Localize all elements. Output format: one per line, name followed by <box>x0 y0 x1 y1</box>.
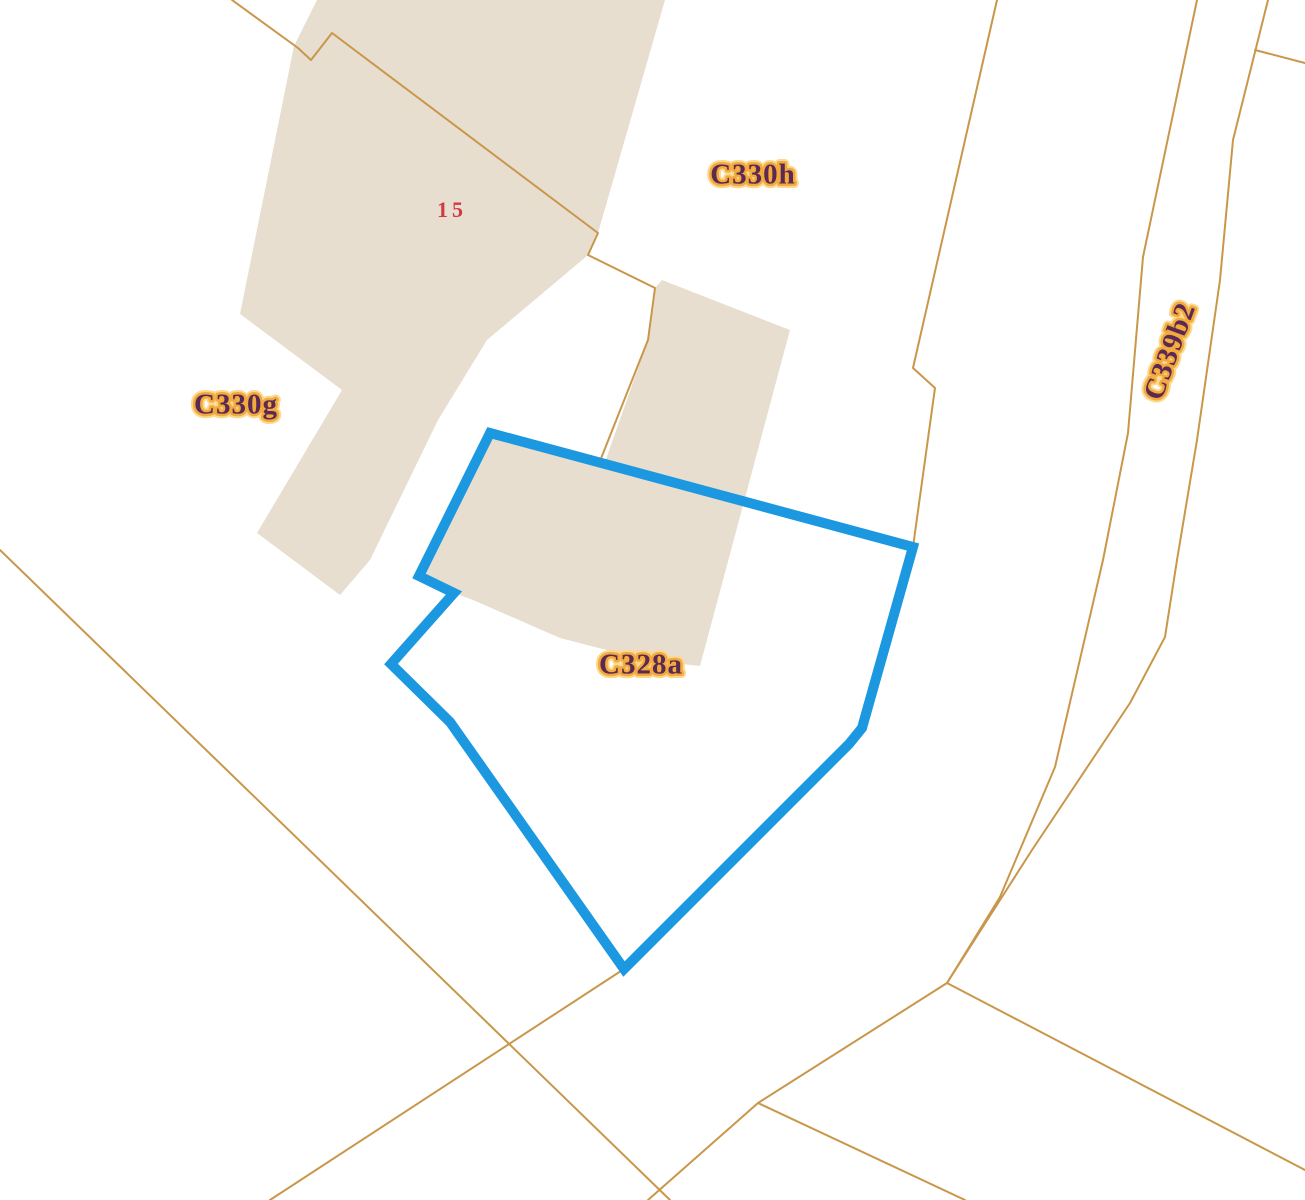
parcel-label-c330g: C330g <box>194 389 278 421</box>
boundary-from-blue-vertex <box>270 969 624 1200</box>
house-number-label-house-15: 15 <box>437 197 467 222</box>
road-southwest <box>0 550 670 1200</box>
building-footprints <box>240 0 790 666</box>
junction-line-south <box>758 1103 965 1200</box>
cadastral-map-canvas[interactable]: C330hC330hC330hC330gC330gC330gC328aC328a… <box>0 0 1305 1200</box>
parcel-label-c328a: C328a <box>599 649 683 681</box>
parcel-label-c330h: C330h <box>710 159 796 191</box>
junction-line-west <box>648 983 947 1200</box>
junction-line-southeast <box>947 983 1305 1170</box>
road-c339b2-left-edge <box>947 0 1197 983</box>
spur-top-right <box>1255 50 1305 63</box>
parcel-line-to-blue-vertex <box>913 0 997 547</box>
road-c339b2-right-edge <box>947 0 1268 983</box>
map-viewport[interactable]: C330hC330hC330hC330gC330gC330gC328aC328a… <box>0 0 1305 1200</box>
parcel-label-c339b2: C339b2 <box>1137 298 1202 404</box>
